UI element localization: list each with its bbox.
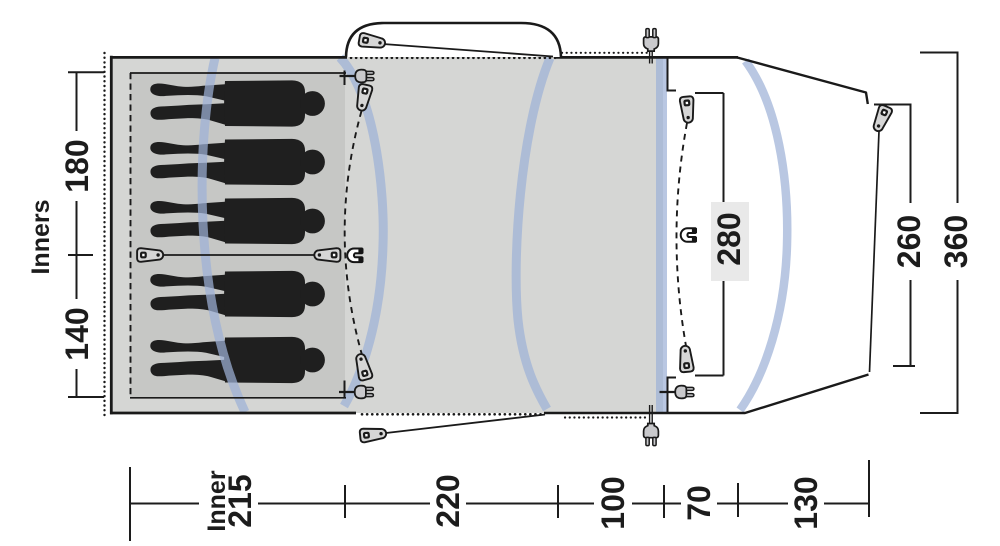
svg-text:Inners: Inners [27, 199, 55, 274]
svg-text:130: 130 [788, 476, 824, 529]
svg-text:70: 70 [681, 485, 717, 521]
svg-text:180: 180 [59, 139, 95, 192]
svg-text:260: 260 [891, 215, 927, 268]
svg-text:220: 220 [430, 474, 466, 527]
svg-text:140: 140 [59, 307, 95, 360]
svg-text:360: 360 [938, 215, 974, 268]
svg-text:100: 100 [595, 476, 631, 529]
svg-text:215: 215 [222, 474, 258, 527]
svg-text:280: 280 [711, 212, 747, 265]
